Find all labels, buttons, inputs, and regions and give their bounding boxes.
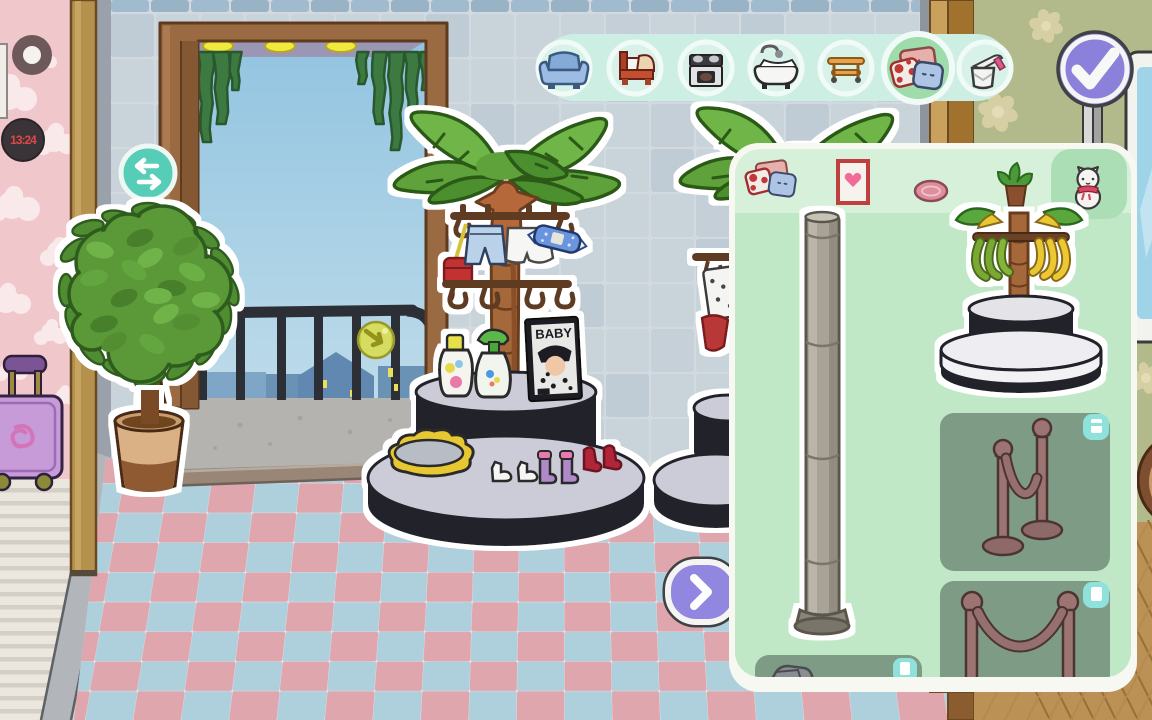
svg-text:13:24: 13:24 xyxy=(10,133,37,147)
svg-text:BABY: BABY xyxy=(535,325,573,342)
